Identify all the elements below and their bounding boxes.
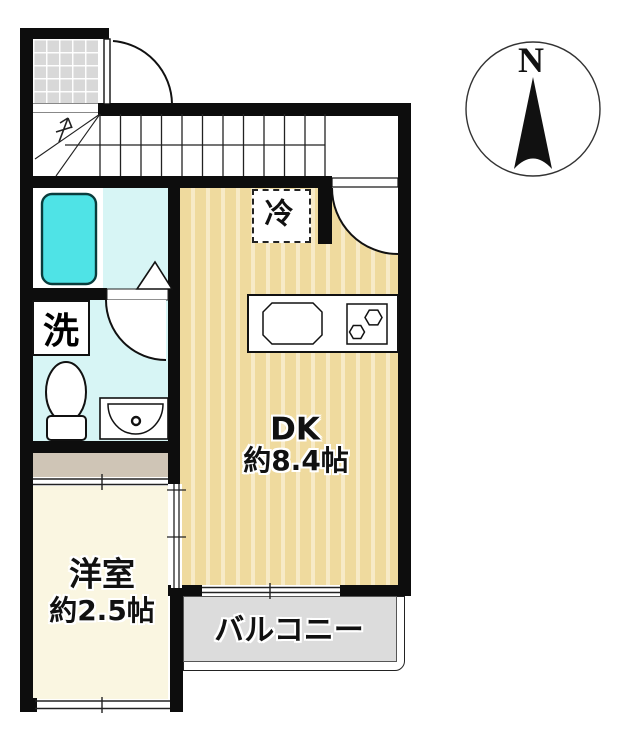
compass-north-label: N — [518, 42, 544, 78]
balcony-window-strip — [202, 585, 340, 596]
entrance-door-arc — [113, 41, 172, 104]
washer-box: 洗 — [32, 300, 90, 356]
floor-plan: 洗 冷 DK 約8.4帖 洋室 約2.5帖 バルコニー N — [0, 0, 626, 746]
bathtub — [42, 194, 96, 284]
bath-door-triangle-icon — [137, 262, 172, 289]
toilet-tank — [47, 416, 86, 440]
refrigerator-label: 冷 — [264, 200, 293, 229]
dk-size-label: 約8.4帖 — [243, 447, 349, 475]
stove-burner-icon — [350, 326, 365, 339]
dk-door-swing — [332, 188, 398, 254]
closet-sliding-door — [33, 474, 168, 490]
vanity-drain-icon — [132, 417, 140, 425]
dk-label: DK — [270, 415, 320, 446]
toilet-bowl — [46, 362, 86, 422]
stove-burner-icon — [365, 310, 382, 325]
bath-door-threshold — [107, 289, 168, 300]
western-room-label: 洋室 — [69, 558, 135, 591]
entrance-door-leaf — [104, 39, 110, 104]
western-room-window — [35, 697, 170, 713]
kitchen-sink — [263, 303, 322, 344]
dk-door-leaf — [332, 178, 398, 187]
western-room-size-label: 約2.5帖 — [49, 597, 155, 625]
washer-label: 洗 — [43, 302, 79, 354]
balcony-label: バルコニー — [214, 616, 363, 646]
dk-westernroom-partition — [171, 484, 182, 588]
staircase — [35, 114, 325, 176]
